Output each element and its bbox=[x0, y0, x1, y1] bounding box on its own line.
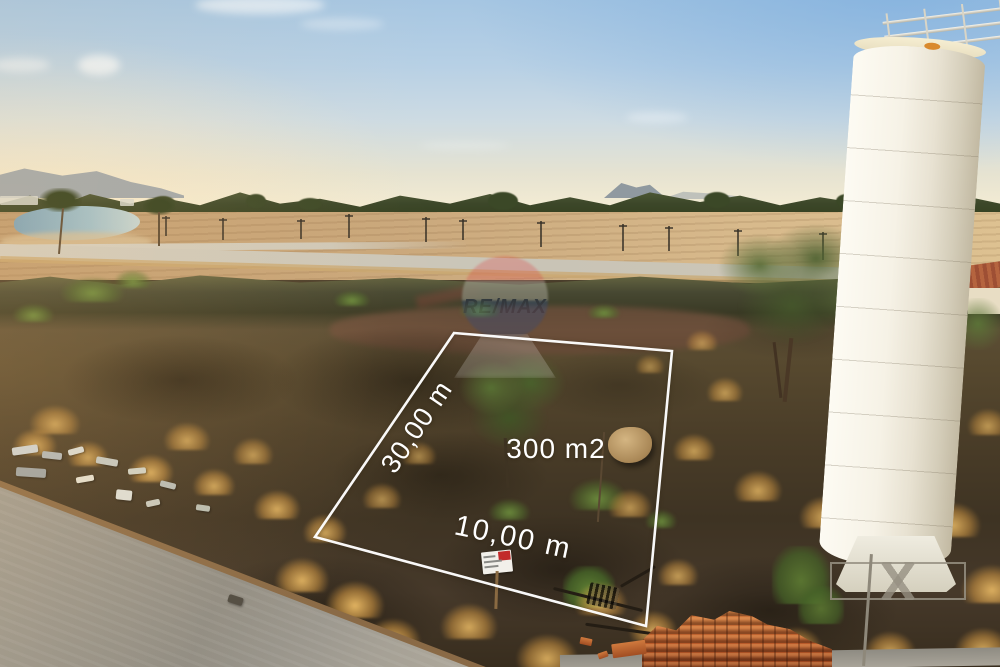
lot-boundary-polygon bbox=[315, 333, 672, 626]
lot-area-label: 300 m2 bbox=[506, 433, 605, 465]
lot-boundary-outline bbox=[0, 0, 1000, 667]
aerial-lot-photo: RE/MAX 30,00 m 300 m2 10,00 m bbox=[0, 0, 1000, 667]
